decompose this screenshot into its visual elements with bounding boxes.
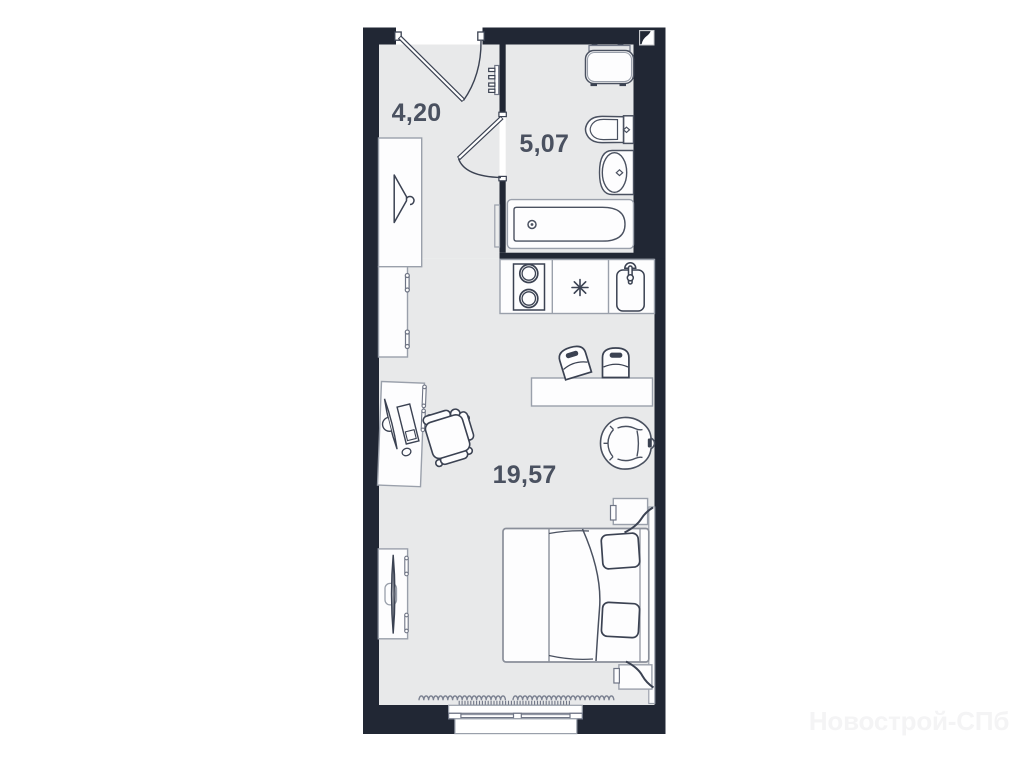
svg-text:4,20: 4,20 xyxy=(392,99,442,127)
svg-text:Новострой-СПб: Новострой-СПб xyxy=(809,706,1010,736)
svg-text:19,57: 19,57 xyxy=(493,461,557,489)
svg-text:5,07: 5,07 xyxy=(519,130,569,158)
